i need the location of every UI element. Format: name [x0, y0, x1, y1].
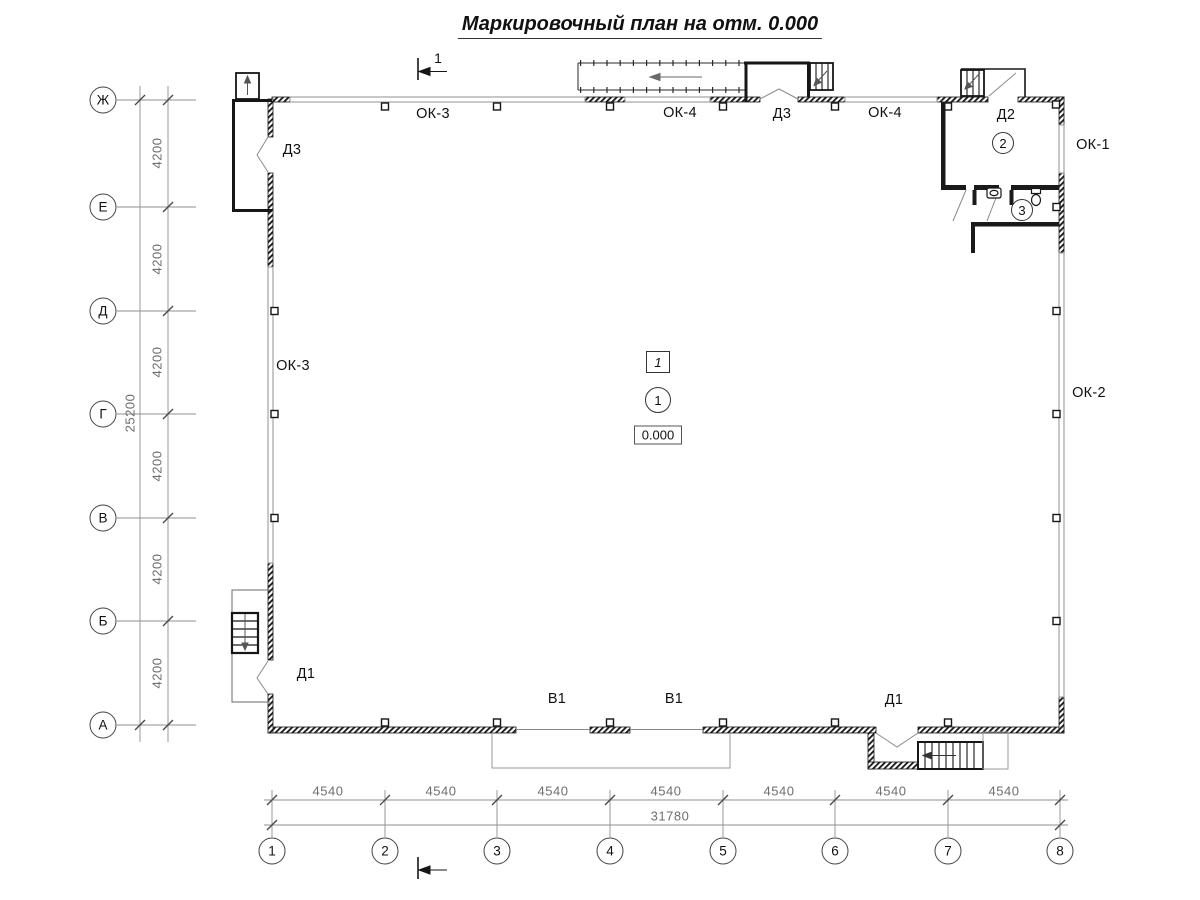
door-mark-d1-right: Д1	[885, 692, 903, 708]
left-dimension-ticks	[135, 95, 173, 730]
door-mark-d2: Д2	[997, 107, 1015, 123]
dim-row-1: 4200	[150, 138, 165, 169]
dim-row-5: 4200	[150, 554, 165, 585]
axis-col-6: 6	[822, 838, 849, 865]
stair-enclosure-bottom-left	[232, 590, 270, 702]
column-marks	[271, 101, 1060, 726]
room-number-entry: 2	[992, 132, 1014, 154]
axis-row-zh: Ж	[90, 87, 117, 114]
section-mark-bottom	[418, 857, 447, 879]
axis-col-2: 2	[372, 838, 399, 865]
dim-col-5: 4540	[764, 784, 795, 799]
window-mark-ok4-right: ОК-4	[868, 105, 902, 121]
ramp-direction-arrow	[650, 74, 702, 81]
axis-row-v: В	[90, 505, 117, 532]
loading-apron	[492, 733, 730, 768]
gate-mark-v1-right: В1	[665, 691, 683, 707]
sink-fixture	[987, 188, 1001, 198]
axis-row-e: Е	[90, 194, 117, 221]
door-d1-right-swing	[876, 733, 918, 747]
window-mark-ok1: ОК-1	[1076, 137, 1110, 153]
dim-col-1: 4540	[313, 784, 344, 799]
floor-type-mark: 1	[646, 351, 670, 373]
interior-walls	[941, 102, 1059, 253]
dim-col-4: 4540	[651, 784, 682, 799]
door-d3-left-swing	[257, 137, 268, 172]
dim-row-3: 4200	[150, 347, 165, 378]
door-mark-d1-left: Д1	[297, 666, 315, 682]
dim-row-total: 25200	[123, 394, 138, 433]
room-number-hall: 1	[645, 387, 671, 413]
dim-row-2: 4200	[150, 244, 165, 275]
exterior-stairs-bottom-right	[918, 732, 1008, 769]
door-mark-d3-top: Д3	[773, 106, 791, 122]
floor-plan-linework	[0, 0, 1200, 900]
dim-col-6: 4540	[876, 784, 907, 799]
exit-up-arrow	[245, 76, 251, 95]
elevation-mark: 0.000	[634, 426, 682, 445]
door-d1-left-swing	[257, 661, 268, 694]
room-number-wc: 3	[1011, 199, 1033, 221]
axis-col-8: 8	[1047, 838, 1074, 865]
drawing-title: Маркировочный план на отм. 0.000	[458, 13, 822, 39]
axis-row-g: Г	[90, 401, 117, 428]
axis-col-3: 3	[484, 838, 511, 865]
dim-row-4: 4200	[150, 451, 165, 482]
door-mark-d3-left: Д3	[283, 142, 301, 158]
dim-col-7: 4540	[989, 784, 1020, 799]
axis-col-7: 7	[935, 838, 962, 865]
dim-row-6: 4200	[150, 658, 165, 689]
window-mark-ok3-left: ОК-3	[276, 358, 310, 374]
toilet-fixture	[1032, 189, 1041, 206]
window-mark-ok4-left: ОК-4	[663, 105, 697, 121]
section-mark-top	[418, 58, 447, 80]
drawing-sheet: Маркировочный план на отм. 0.000 1 ОК-3 …	[0, 0, 1200, 900]
vestibule-top-left	[234, 73, 273, 211]
section-mark-label: 1	[434, 50, 442, 66]
axis-col-4: 4	[597, 838, 624, 865]
window-mark-ok2: ОК-2	[1072, 385, 1106, 401]
dim-col-3: 4540	[538, 784, 569, 799]
axis-row-b: Б	[90, 608, 117, 635]
window-mark-ok3-top: ОК-3	[416, 106, 450, 122]
axis-row-d: Д	[90, 298, 117, 325]
dim-col-2: 4540	[426, 784, 457, 799]
axis-row-a: А	[90, 712, 117, 739]
door-d2-swing	[989, 73, 1016, 96]
door-d3-top-swing	[760, 89, 798, 99]
dim-col-total: 31780	[651, 809, 690, 824]
axis-col-1: 1	[259, 838, 286, 865]
axis-col-5: 5	[710, 838, 737, 865]
gate-mark-v1-left: В1	[548, 691, 566, 707]
